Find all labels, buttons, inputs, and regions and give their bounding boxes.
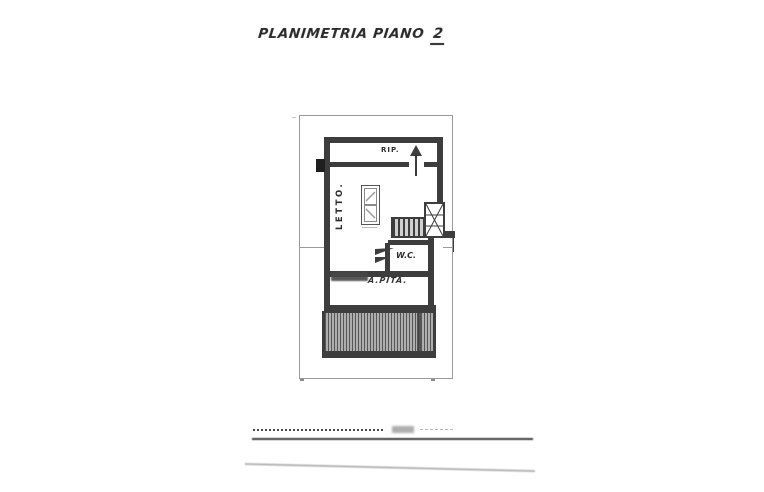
wall-interior-upper-left	[330, 162, 409, 167]
wall-top	[324, 137, 443, 143]
boundary-corner-tick	[300, 379, 304, 381]
page-title: PLANIMETRIA PIANO2	[257, 26, 446, 45]
room-label-storage: RIP.	[381, 146, 400, 154]
boundary-corner-tick	[292, 117, 296, 118]
page-edge-line	[245, 463, 535, 472]
boundary-mid-line-left	[299, 247, 324, 248]
wardrobe-underline	[362, 227, 377, 228]
wardrobe-symbol	[361, 185, 380, 225]
floor-number: 2	[430, 26, 446, 45]
room-label-attic: A.PITA.	[368, 276, 408, 285]
wall-interior-upper-right	[424, 162, 437, 167]
stairs-winder-lines	[426, 204, 443, 236]
room-label-bedroom: LETTO.	[335, 182, 345, 230]
wc-door-icon	[373, 246, 397, 265]
boundary-mid-line-right	[443, 247, 452, 248]
wardrobe-cell	[364, 188, 377, 205]
footer-dotted-line	[253, 429, 383, 431]
terrace-dark-band	[417, 313, 421, 351]
illegible-label-smudge	[331, 272, 368, 281]
stairs-winder	[424, 202, 445, 238]
wardrobe-cell	[364, 205, 377, 222]
wall-stub-tick	[453, 238, 454, 252]
footer-solid-rule	[252, 438, 533, 440]
stairs-run	[391, 217, 428, 238]
boundary-corner-tick	[431, 379, 435, 381]
page-title-text: PLANIMETRIA PIANO	[257, 26, 425, 42]
room-label-wc: W.C.	[396, 251, 416, 260]
footer-signature-smudge	[392, 426, 414, 433]
up-arrow-icon	[407, 144, 425, 178]
footer-dashed-line	[420, 429, 453, 430]
scanned-floorplan-page: PLANIMETRIA PIANO2	[0, 0, 764, 492]
wall-pillar	[316, 159, 325, 172]
